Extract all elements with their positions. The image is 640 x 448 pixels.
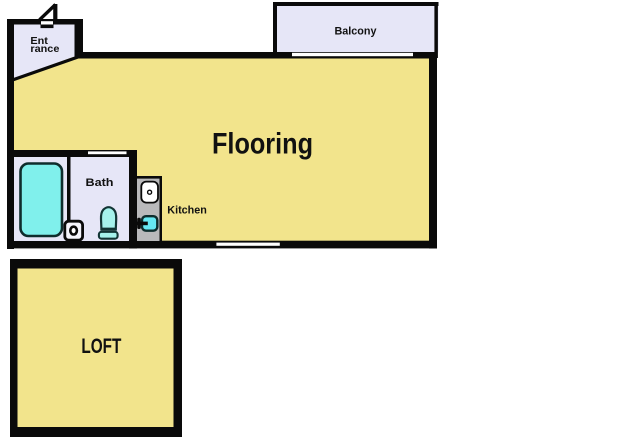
svg-text:Bath: Bath — [86, 177, 114, 189]
svg-text:Kitchen: Kitchen — [167, 204, 207, 216]
svg-text:rance: rance — [30, 44, 59, 55]
svg-text:Flooring: Flooring — [212, 128, 313, 161]
svg-text:Balcony: Balcony — [335, 26, 378, 38]
svg-text:LOFT: LOFT — [81, 334, 121, 358]
